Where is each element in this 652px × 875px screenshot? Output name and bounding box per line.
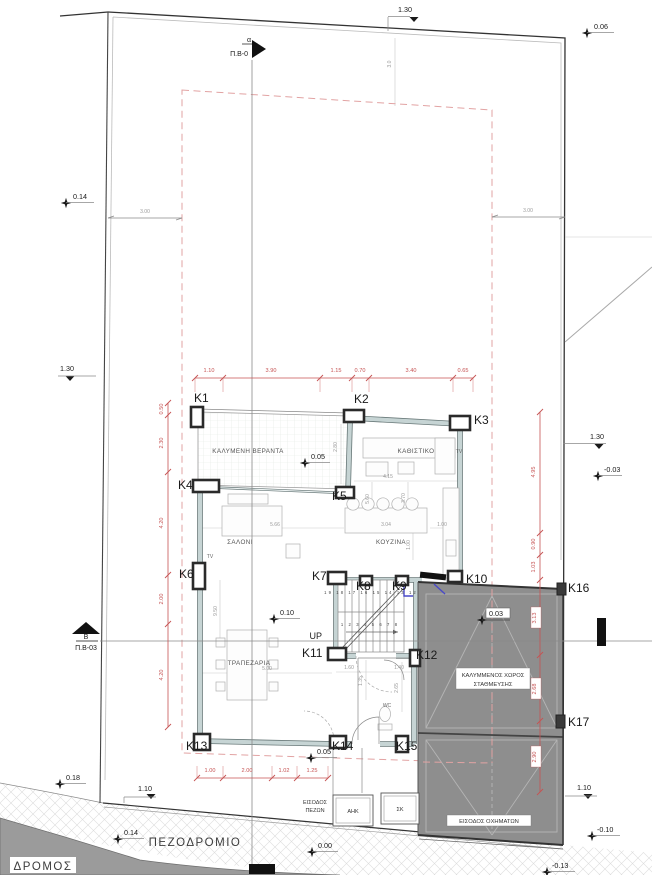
section-end-bar-bottom	[249, 864, 275, 874]
column-label-k16: K16	[568, 581, 590, 595]
utility-box-ahk: ΑΗΚ	[333, 795, 373, 826]
column-label-k2: K2	[354, 392, 369, 406]
svg-text:-0.03: -0.03	[604, 465, 620, 474]
dim-int-2: 5.66	[270, 522, 280, 528]
stairs-lower-numbers: 1 2 3 4 5 6 7 8	[341, 622, 399, 627]
dim-right-5: 2.90	[532, 752, 538, 763]
svg-text:1.30: 1.30	[60, 364, 74, 373]
ped-entrance-label-line1: ΕΙΣΟΔΟΣ	[303, 800, 328, 806]
room-label-tv-sitting: TV	[456, 449, 463, 455]
column-label-k1: K1	[194, 391, 209, 405]
dim-int-9: 9.50	[213, 606, 219, 616]
section-end-bar-right	[597, 618, 606, 646]
dim-bottom-3: 1.25	[307, 768, 318, 774]
utility-box-sk: ΣΚ	[381, 793, 419, 824]
door-leaf	[420, 572, 446, 581]
column-label-k4: K4	[178, 478, 193, 492]
dim-right-4: 2.68	[532, 684, 538, 695]
site-plan-drawing: ΚΑΛΥΜΜΕΝΟΣ ΧΩΡΟΣ ΣΤΑΘΜΕΥΣΗΣ ΕΙΣΟΔΟΣ ΟΧΗΜ…	[0, 0, 652, 875]
guide-lines	[388, 17, 652, 342]
entrances: ΕΙΣΟΔΟΣ ΠΕΖΩΝ ΑΗΚ ΣΚ	[296, 748, 419, 826]
dim-top-2: 1.15	[331, 368, 342, 374]
column-label-k5: K5	[332, 489, 347, 503]
svg-text:0.18: 0.18	[66, 773, 80, 782]
column-label-k10: K10	[466, 572, 488, 586]
svg-text:0.05: 0.05	[311, 452, 325, 461]
level-bench-left: 1.30	[58, 364, 96, 381]
dim-bottom-2: 1.02	[279, 768, 290, 774]
level-right-mid: -0.03	[593, 465, 622, 481]
dim-top-3: 0.70	[355, 368, 366, 374]
section-left-label: Π.Β-03	[75, 645, 97, 652]
dim-left-2: 4.20	[159, 518, 165, 529]
column-label-k6: K6	[179, 567, 194, 581]
vehicle-entrance-label: ΕΙΣΟΔΟΣ ΟΧΗΜΑΤΩΝ	[459, 819, 519, 825]
dim-int-6: 3.70	[401, 493, 407, 503]
dim-top-5: 0.65	[458, 368, 469, 374]
svg-text:-0.10: -0.10	[597, 825, 613, 834]
dim-int-7: 1.00	[406, 540, 412, 550]
level-bench-right: 1.30	[563, 432, 606, 449]
room-label-living: ΣΑΛΟΝΙ	[227, 539, 253, 546]
svg-text:0.10: 0.10	[280, 608, 294, 617]
level-road-right: -0.10	[587, 825, 620, 841]
dim-int-5: 5.60	[365, 494, 371, 504]
sk-label: ΣΚ	[396, 807, 403, 813]
setback-dim-left: 3.00	[140, 209, 150, 215]
dim-bottom-1: 2.00	[242, 768, 253, 774]
section-marker-left	[72, 622, 100, 634]
dim-top-1: 3.90	[266, 368, 277, 374]
dim-bottom-0: 1.00	[205, 768, 216, 774]
level-dining: 0.10	[269, 608, 300, 624]
svg-text:1.10: 1.10	[577, 783, 591, 792]
svg-text:1.30: 1.30	[590, 432, 604, 441]
room-label-wc: WC	[383, 703, 392, 709]
room-label-sitting: ΚΑΘΙΣΤΙΚΟ	[398, 448, 435, 455]
column-label-k12: K12	[416, 648, 438, 662]
level-top-right: 0.06	[582, 22, 614, 38]
room-label-tv-living: TV	[207, 554, 214, 560]
svg-text:0.00: 0.00	[318, 841, 332, 850]
ped-entrance-label-line2: ΠΕΖΩΝ	[305, 808, 324, 814]
dim-right-1: 0.90	[531, 539, 537, 550]
section-marker-top	[252, 40, 266, 58]
room-label-kitchen: ΚΟΥΖΙΝΑ	[376, 539, 406, 546]
svg-text:1.30: 1.30	[398, 5, 412, 14]
svg-text:0.06: 0.06	[594, 22, 608, 31]
road-label: ΔΡΟΜΟΣ	[14, 861, 73, 873]
dim-int-13: 2.65	[394, 683, 400, 693]
parking-label-line1: ΚΑΛΥΜΜΕΝΟΣ ΧΩΡΟΣ	[462, 673, 525, 679]
svg-text:0.05: 0.05	[317, 747, 331, 756]
dim-left-1: 2.30	[159, 438, 165, 449]
dim-int-1: 4.15	[383, 474, 393, 480]
level-bench-bottom-right: 1.10	[565, 783, 597, 799]
site-plan-page: ΚΑΛΥΜΜΕΝΟΣ ΧΩΡΟΣ ΣΤΑΘΜΕΥΣΗΣ ΕΙΣΟΔΟΣ ΟΧΗΜ…	[0, 0, 652, 875]
svg-text:0.14: 0.14	[73, 192, 87, 201]
sidewalk-label: ΠΕΖΟΔΡΟΜΙΟ	[149, 837, 242, 849]
section-top-sub: α	[247, 37, 251, 44]
setback-dimensions: 3.00 3.00 3.0	[108, 60, 565, 220]
svg-text:0.03: 0.03	[489, 609, 503, 618]
dim-top-0: 1.10	[204, 368, 215, 374]
section-top-label: Π.Β-0	[230, 51, 248, 58]
dim-right-2: 1.03	[531, 562, 537, 573]
column-label-k17: K17	[568, 715, 590, 729]
level-bench-top: 1.30	[388, 5, 419, 22]
column-label-k11: K11	[302, 646, 323, 660]
level-bottom-left: 0.18	[55, 773, 86, 789]
dim-left-4: 4.20	[159, 670, 165, 681]
svg-text:0.14: 0.14	[124, 828, 138, 837]
setback-dim-top: 3.0	[387, 60, 393, 67]
column-label-k14: K14	[332, 739, 354, 753]
svg-text:1.10: 1.10	[138, 784, 152, 793]
column-label-k7: K7	[312, 569, 327, 583]
section-left-sub: Β	[84, 634, 89, 641]
svg-text:-0.13: -0.13	[552, 861, 568, 870]
living-room-furniture	[222, 494, 300, 558]
column-label-k3: K3	[474, 413, 489, 427]
dim-right-3: 3.13	[532, 613, 538, 624]
dim-left-0: 0.50	[159, 404, 165, 415]
level-left-upper: 0.14	[61, 192, 94, 208]
dim-int-10: 1.60	[344, 665, 354, 671]
stairs-upper-numbers: 19 18 17 16 15 14 13 12	[324, 590, 418, 595]
dim-top-4: 3.40	[406, 368, 417, 374]
room-label-dining: ΤΡΑΠΕΖΑΡΙΑ	[228, 660, 271, 667]
column-label-k13: K13	[186, 739, 208, 753]
column-label-k15: K15	[396, 739, 418, 753]
room-label-veranda: ΚΑΛΥΜΕΝΗ ΒΕΡΑΝΤΑ	[212, 448, 284, 455]
dim-int-4: 1.00	[437, 522, 447, 528]
parking-label-line2: ΣΤΑΘΜΕΥΣΗΣ	[474, 682, 513, 688]
dim-int-11: 1.40	[394, 665, 404, 671]
ahk-label: ΑΗΚ	[347, 809, 359, 815]
stairs-up-label: UP	[309, 631, 322, 641]
dim-int-0: 2.80	[333, 442, 339, 452]
sitting-room-furniture	[363, 438, 455, 476]
setback-dim-right: 3.00	[523, 208, 533, 214]
dim-int-12: 1.35	[358, 676, 364, 686]
dim-right-0: 4.95	[531, 467, 537, 478]
level-bench-bottom-left: 1.10	[124, 784, 156, 803]
dim-left-3: 2.00	[159, 594, 165, 605]
dim-int-3: 3.04	[381, 522, 391, 528]
